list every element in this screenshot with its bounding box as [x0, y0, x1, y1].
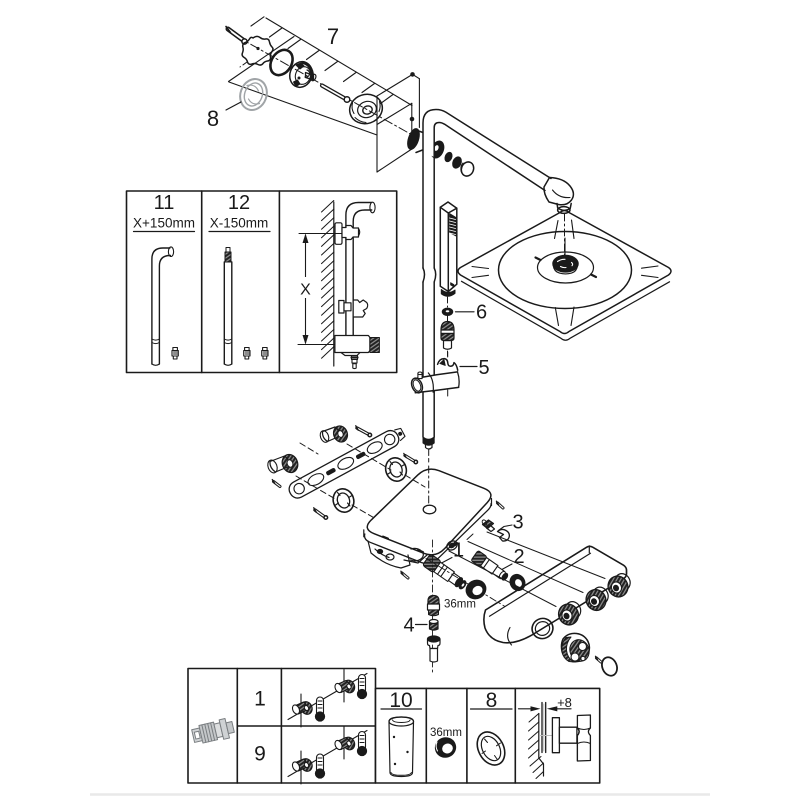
svg-text:9: 9 [254, 743, 266, 766]
svg-text:4: 4 [403, 615, 414, 637]
svg-text:X+150mm: X+150mm [133, 216, 195, 231]
svg-text:36mm: 36mm [444, 599, 476, 611]
svg-text:12: 12 [228, 192, 250, 214]
svg-text:8: 8 [207, 106, 219, 131]
svg-text:6: 6 [476, 302, 487, 324]
svg-text:+8: +8 [557, 695, 572, 710]
svg-text:5: 5 [478, 357, 489, 379]
svg-text:7: 7 [327, 24, 339, 49]
svg-text:1: 1 [254, 688, 266, 711]
svg-text:36mm: 36mm [430, 727, 462, 739]
svg-text:3: 3 [512, 512, 523, 534]
svg-text:X-150mm: X-150mm [210, 216, 269, 231]
svg-text:X: X [300, 282, 311, 299]
svg-text:2: 2 [513, 546, 524, 568]
svg-text:11: 11 [154, 192, 175, 214]
